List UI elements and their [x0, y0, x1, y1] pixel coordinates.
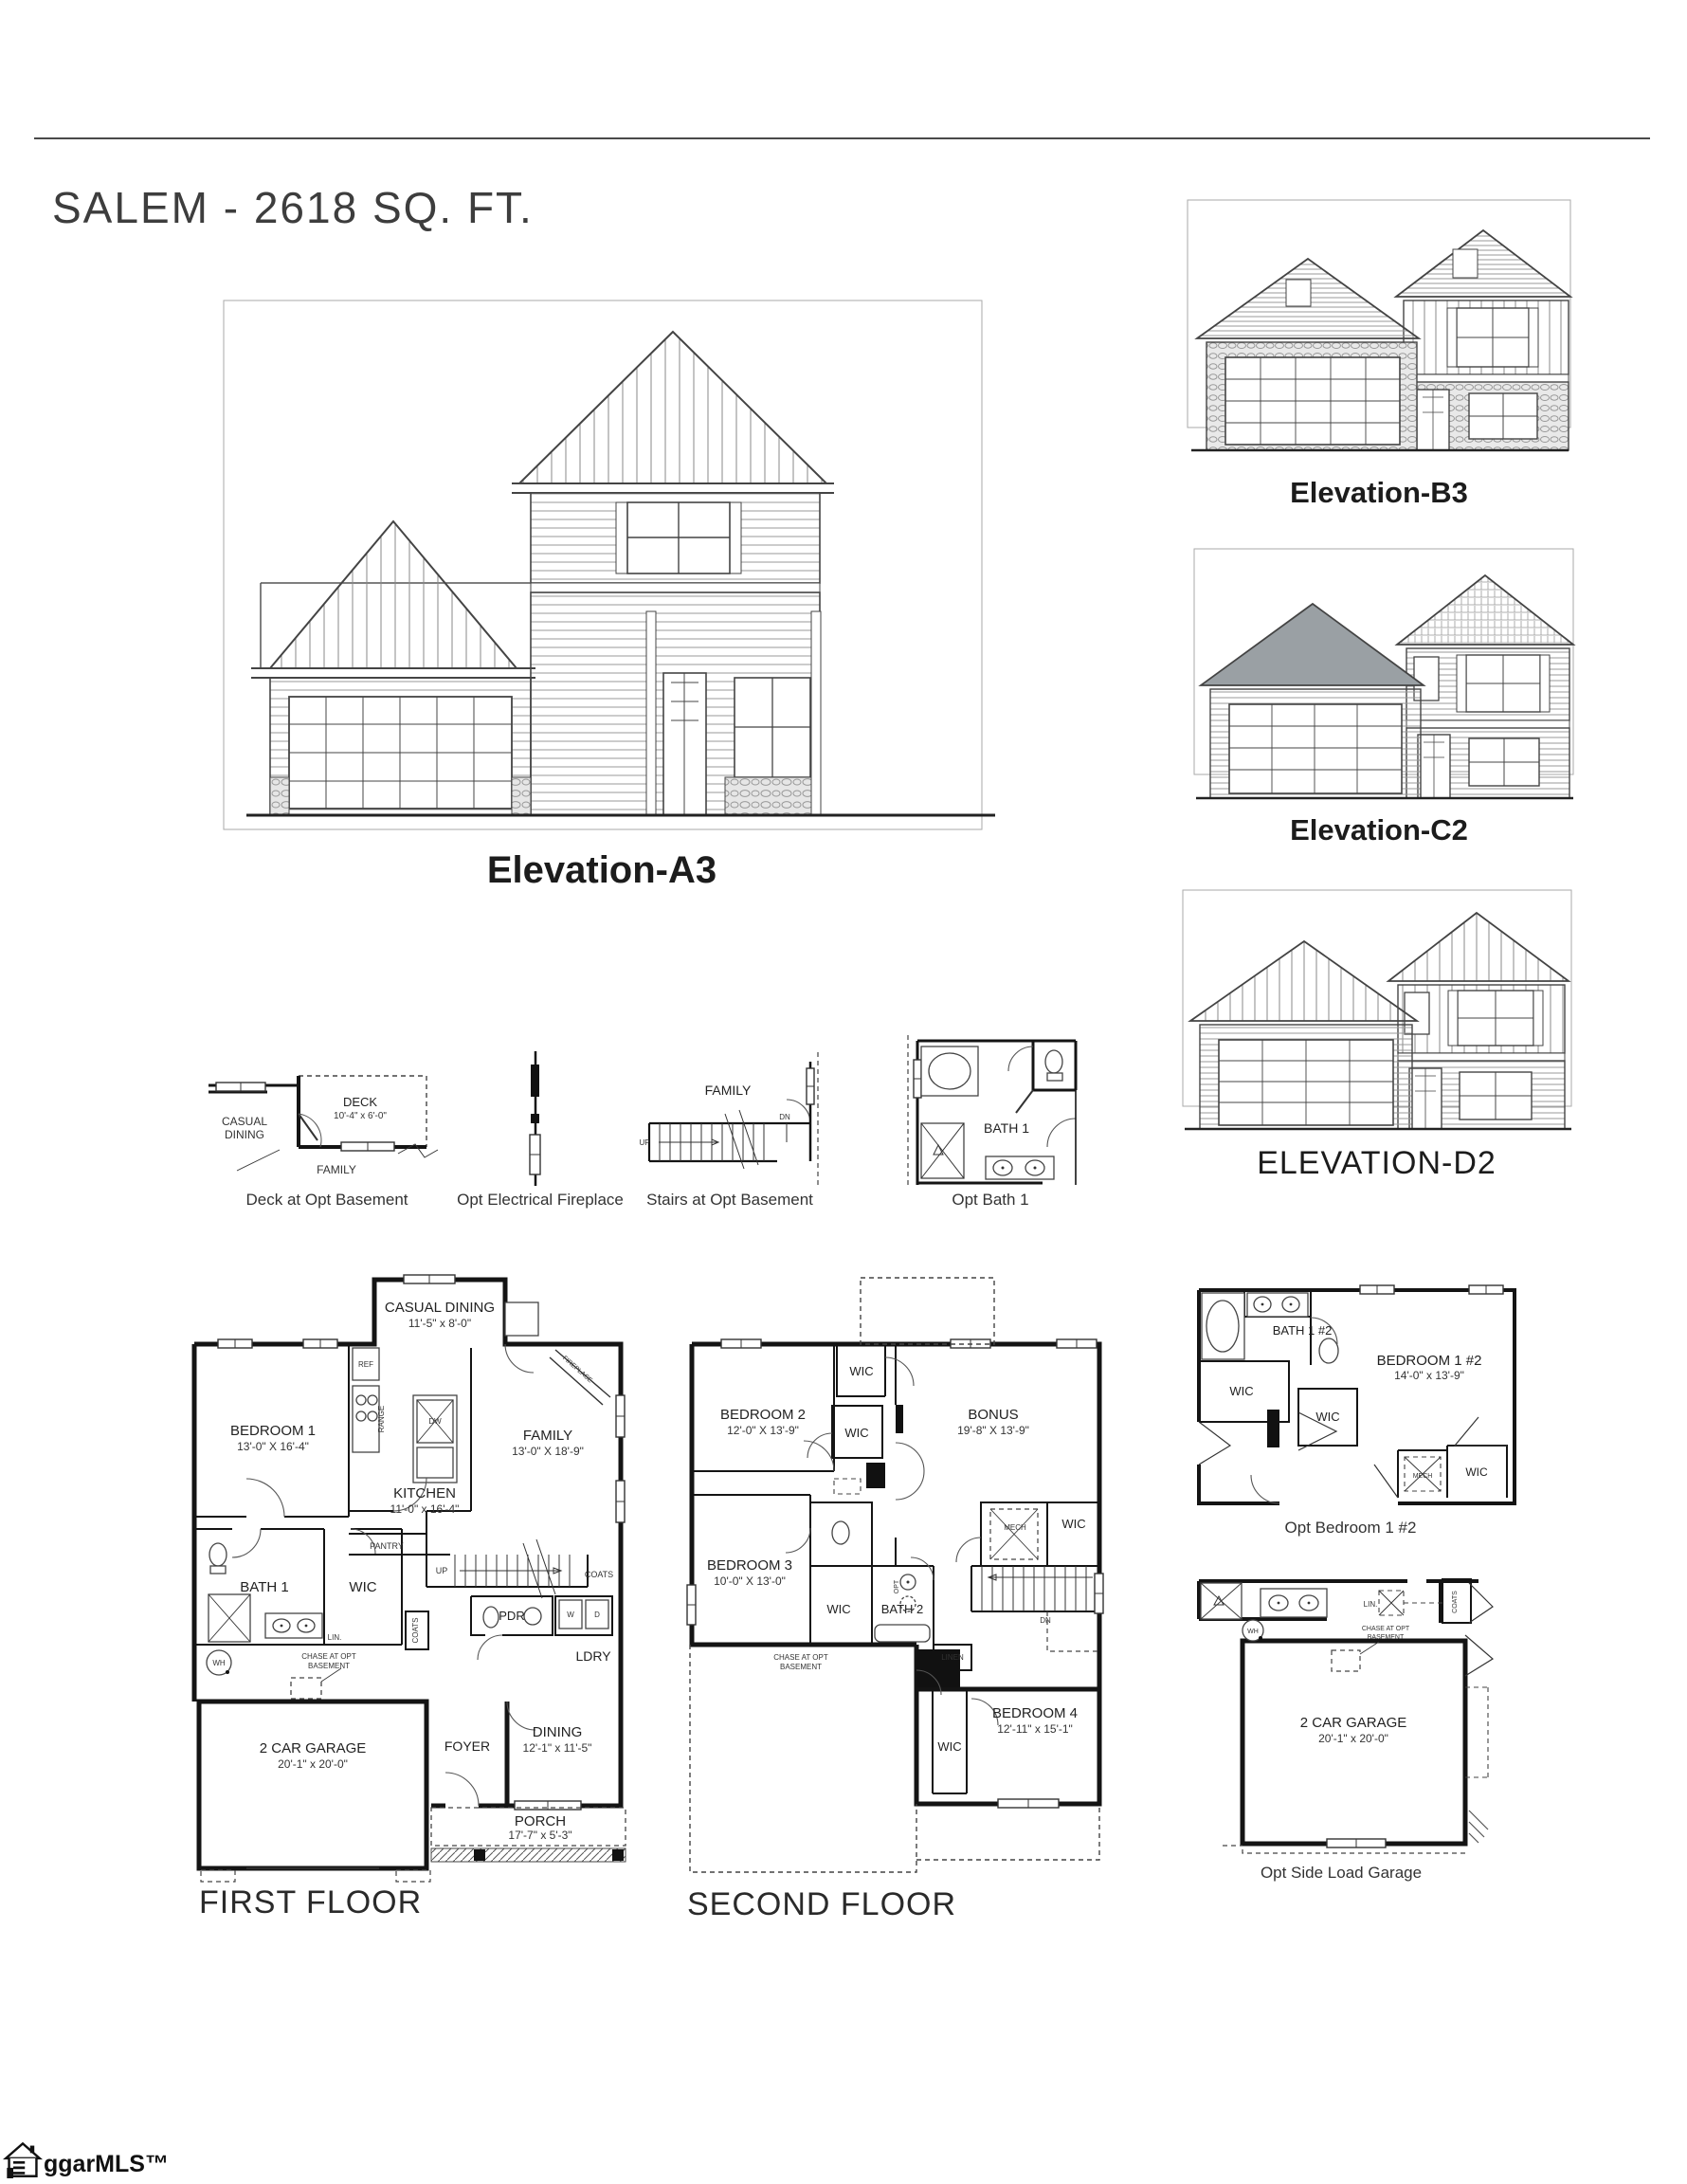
opt-deck-drawing: CASUAL DINING DECK 10'-4" x 6'-0" FAMILY [209, 1066, 445, 1190]
ff-walls [194, 1280, 621, 1868]
sf-bedroom4-dims: 12'-11" x 15'-1" [997, 1722, 1073, 1736]
top-rule [34, 137, 1650, 139]
a3-left-block [251, 521, 535, 815]
ff-porch: PORCH [515, 1813, 566, 1829]
sf-wic4: WIC [1061, 1517, 1085, 1531]
ff-pantry: PANTRY [370, 1541, 404, 1551]
stairs-dn-label: DN [779, 1113, 790, 1121]
sf-bonus-dims: 19'-8" X 13'-9" [957, 1424, 1029, 1437]
elevation-a3-drawing [218, 299, 1024, 844]
ff-family-dims: 13'-0" X 18'-9" [512, 1445, 584, 1458]
stairs-up-label: UP [639, 1138, 649, 1147]
ob-wic3: WIC [1465, 1465, 1488, 1479]
deck-family-label: FAMILY [317, 1163, 356, 1176]
ff-casual-dining-dims: 11'-5" x 8'-0" [408, 1317, 471, 1330]
d2-garage-block [1190, 941, 1417, 1129]
opt-bedroom-caption: Opt Bedroom 1 #2 [1185, 1519, 1516, 1538]
opt-fireplace-caption: Opt Electrical Fireplace [445, 1191, 635, 1210]
opt-bath1-drawing: BATH 1 [900, 1033, 1080, 1190]
ob-bedroom-dims: 14'-0" x 13'-9" [1394, 1369, 1464, 1382]
deck-room-dims: 10'-4" x 6'-0" [334, 1111, 387, 1121]
ff-bath1: BATH 1 [240, 1579, 288, 1595]
ob-labels: BATH 1 #2 WIC BEDROOM 1 #2 14'-0" x 13'-… [1229, 1323, 1488, 1480]
ob-doors [1199, 1318, 1507, 1503]
ff-coats: COATS [585, 1570, 613, 1579]
sf-bedroom2: BEDROOM 2 [720, 1407, 806, 1423]
ff-up: UP [436, 1566, 448, 1575]
elevation-a3-label: Elevation-A3 [403, 849, 801, 892]
ff-kitchen: KITCHEN [393, 1485, 456, 1501]
ff-wh: WH [212, 1659, 226, 1667]
og-coats: COATS [1452, 1591, 1459, 1613]
opt-bedroom-plan: BATH 1 #2 WIC BEDROOM 1 #2 14'-0" x 13'-… [1185, 1261, 1516, 1512]
c2-garage-block [1201, 604, 1424, 798]
opt-garage-plan: LIN. COATS WH CHASE AT OPT BASEMENT 2 CA… [1185, 1564, 1497, 1863]
og-wh: WH [1247, 1629, 1259, 1635]
og-chase-2: BASEMENT [1368, 1634, 1405, 1641]
opt-bath1-caption: Opt Bath 1 [896, 1191, 1085, 1210]
deck-casual-dining-label-1: CASUAL [222, 1115, 267, 1128]
elevation-d2-label: ELEVATION-D2 [1175, 1145, 1578, 1182]
elevation-c2-label: Elevation-C2 [1180, 813, 1578, 847]
og-windows [1327, 1839, 1386, 1847]
sf-bonus: BONUS [968, 1407, 1018, 1423]
ff-range: RANGE [377, 1406, 386, 1432]
ff-w: W [567, 1611, 574, 1619]
ff-d: D [594, 1611, 600, 1619]
c2-right-block [1397, 575, 1573, 798]
ob-bath: BATH 1 #2 [1273, 1323, 1333, 1338]
ff-porch-dims: 17'-7" x 5'-3" [508, 1829, 571, 1842]
ff-family: FAMILY [523, 1428, 572, 1444]
sf-wic5: WIC [937, 1739, 961, 1754]
ff-kitchen-dims: 11'-0" x 16'-4" [390, 1502, 460, 1516]
ff-casual-dining: CASUAL DINING [385, 1300, 495, 1316]
opt-deck-caption: Deck at Opt Basement [204, 1191, 450, 1210]
sf-stairs [982, 1566, 1099, 1651]
sf-opt: OPT [894, 1579, 900, 1593]
og-chase-1: CHASE AT OPT [1362, 1626, 1410, 1632]
ff-garage-dims: 20'-1" x 20'-0" [278, 1757, 348, 1771]
ff-fireplace: FIREPLACE [561, 1355, 593, 1384]
deck-casual-dining-label-2: DINING [225, 1128, 264, 1141]
second-floor-plan: BEDROOM 2 12'-0" X 13'-9" WIC WIC BONUS … [668, 1253, 1128, 1884]
watermark: ggarMLS™ [4, 2140, 169, 2178]
ob-bedroom: BEDROOM 1 #2 [1377, 1353, 1482, 1369]
og-garage-dims: 20'-1" x 20'-0" [1318, 1732, 1388, 1745]
sf-bedroom3: BEDROOM 3 [707, 1557, 792, 1574]
ff-lin: LIN. [328, 1633, 342, 1642]
ff-dw: DW [428, 1417, 442, 1426]
elevation-d2-drawing [1175, 886, 1578, 1142]
ob-wic1: WIC [1229, 1384, 1253, 1398]
watermark-house-icon [4, 2140, 42, 2178]
sf-wic2: WIC [844, 1426, 868, 1440]
ff-bedroom1-dims: 13'-0" X 16'-4" [237, 1440, 309, 1453]
ff-foyer: FOYER [444, 1738, 490, 1754]
ff-chase-1: CHASE AT OPT [301, 1652, 356, 1661]
sf-bath2: BATH 2 [881, 1602, 924, 1616]
sf-bedroom2-dims: 12'-0" X 13'-9" [727, 1424, 799, 1437]
ff-dining: DINING [533, 1724, 583, 1740]
first-floor-caption: FIRST FLOOR [199, 1884, 422, 1921]
ff-ref: REF [358, 1360, 373, 1369]
sf-bedroom3-dims: 10'-0" X 13'-0" [714, 1574, 786, 1588]
sf-chase-1: CHASE AT OPT [773, 1653, 828, 1662]
sf-mech: MECH [1004, 1523, 1026, 1532]
deck-room-label: DECK [343, 1095, 377, 1109]
ob-mech: MECH [1413, 1473, 1433, 1480]
opt-stairs-drawing: FAMILY UP DN [635, 1047, 825, 1190]
b3-right-block [1396, 230, 1570, 450]
opt-garage-caption: Opt Side Load Garage [1180, 1864, 1502, 1883]
elevation-b3-drawing [1180, 194, 1578, 474]
b3-garage-block [1197, 259, 1419, 450]
sf-linen: LINEN [941, 1653, 964, 1662]
sf-dn: DN [1040, 1616, 1051, 1625]
sf-chase-2: BASEMENT [780, 1663, 822, 1671]
ff-chase-2: BASEMENT [308, 1662, 350, 1670]
sf-wic3: WIC [826, 1602, 850, 1616]
ff-dining-dims: 12'-1" x 11'-5" [523, 1741, 592, 1755]
ob-wic2: WIC [1315, 1410, 1339, 1424]
ff-wic: WIC [349, 1579, 376, 1595]
watermark-text: ggarMLS™ [44, 2151, 169, 2178]
ff-coats-closet: COATS [411, 1618, 420, 1644]
optbath1-room-label: BATH 1 [984, 1120, 1029, 1136]
ff-ldry: LDRY [575, 1648, 611, 1664]
sf-bedroom4: BEDROOM 4 [992, 1705, 1078, 1721]
opt-stairs-caption: Stairs at Opt Basement [630, 1191, 829, 1210]
ff-stairs [455, 1539, 570, 1598]
opt-fireplace-drawing [512, 1047, 559, 1190]
a3-right-block [512, 332, 834, 815]
ff-bedroom1: BEDROOM 1 [230, 1423, 316, 1439]
elevation-b3-label: Elevation-B3 [1180, 476, 1578, 510]
sf-wic1: WIC [849, 1364, 873, 1378]
ff-garage: 2 CAR GARAGE [260, 1740, 367, 1756]
og-garage: 2 CAR GARAGE [1300, 1715, 1407, 1731]
elevation-c2-drawing [1187, 545, 1580, 815]
og-lin: LIN. [1364, 1600, 1378, 1609]
stairs-family-label: FAMILY [705, 1083, 752, 1098]
second-floor-caption: SECOND FLOOR [687, 1886, 956, 1923]
ff-pdr: PDR [499, 1609, 524, 1623]
first-floor-plan: CASUAL DINING 11'-5" x 8'-0" BEDROOM 1 1… [190, 1253, 635, 1879]
plan-title: SALEM - 2618 SQ. FT. [52, 182, 534, 233]
